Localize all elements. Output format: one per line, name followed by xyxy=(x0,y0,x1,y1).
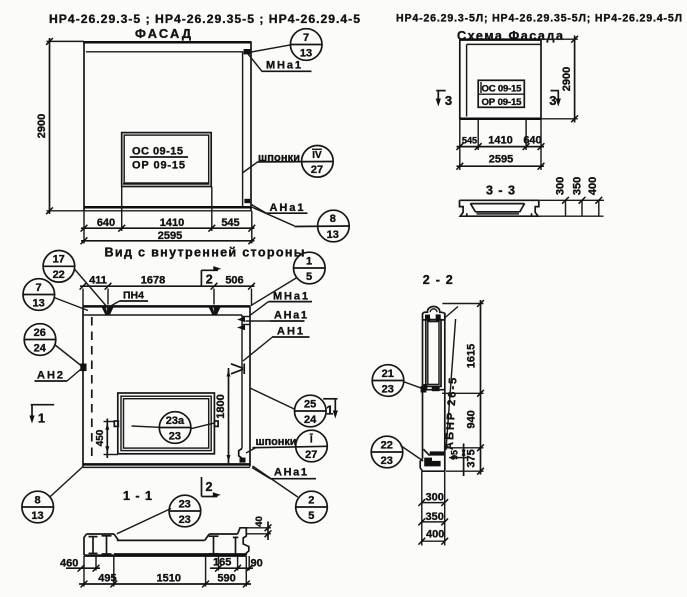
svg-text:АН1: АН1 xyxy=(277,326,303,338)
svg-text:13: 13 xyxy=(31,510,43,522)
svg-text:8: 8 xyxy=(330,213,336,225)
svg-text:3-3: 3-3 xyxy=(486,184,515,198)
svg-text:13: 13 xyxy=(327,229,339,241)
svg-text:2595: 2595 xyxy=(158,230,182,242)
svg-text:350: 350 xyxy=(571,177,583,195)
svg-text:1410: 1410 xyxy=(488,135,512,147)
svg-text:350: 350 xyxy=(426,511,444,523)
svg-text:ФАСАД: ФАСАД xyxy=(135,26,191,41)
svg-text:460: 460 xyxy=(60,558,78,570)
svg-text:IV: IV xyxy=(312,150,322,161)
svg-text:МНа1: МНа1 xyxy=(266,60,301,72)
svg-text:АНа1: АНа1 xyxy=(274,310,307,322)
svg-text:АН2: АН2 xyxy=(37,369,63,381)
svg-text:ОС 09-15: ОС 09-15 xyxy=(482,83,523,94)
svg-text:2: 2 xyxy=(308,494,314,506)
svg-text:1615: 1615 xyxy=(465,344,477,368)
svg-text:506: 506 xyxy=(225,274,243,286)
svg-text:25: 25 xyxy=(304,398,316,410)
svg-text:23а: 23а xyxy=(166,415,185,427)
svg-text:940: 940 xyxy=(465,410,477,428)
svg-text:300: 300 xyxy=(426,492,444,504)
svg-text:22: 22 xyxy=(53,269,65,281)
svg-text:375: 375 xyxy=(465,449,477,467)
svg-text:Схема Фасада: Схема Фасада xyxy=(457,29,564,43)
svg-text:450: 450 xyxy=(95,429,106,446)
svg-text:23: 23 xyxy=(179,514,191,526)
svg-text:27: 27 xyxy=(311,164,323,176)
svg-text:495: 495 xyxy=(98,573,116,585)
svg-text:300: 300 xyxy=(555,177,567,195)
svg-text:23: 23 xyxy=(382,383,394,395)
svg-text:I: I xyxy=(310,435,313,446)
svg-text:Вид с внутренней стороны: Вид с внутренней стороны xyxy=(105,246,305,260)
svg-text:АНа1: АНа1 xyxy=(270,202,304,214)
svg-text:23: 23 xyxy=(381,455,393,467)
svg-text:1: 1 xyxy=(306,255,312,267)
svg-text:545: 545 xyxy=(221,217,239,229)
svg-text:3: 3 xyxy=(549,93,556,108)
svg-text:1678: 1678 xyxy=(141,274,165,286)
svg-text:ПН4: ПН4 xyxy=(123,290,144,302)
svg-text:640: 640 xyxy=(523,135,541,147)
svg-text:23: 23 xyxy=(169,430,181,442)
svg-text:3: 3 xyxy=(445,93,452,108)
svg-text:23: 23 xyxy=(179,498,191,510)
svg-text:МНа1: МНа1 xyxy=(273,290,308,302)
svg-text:1-1: 1-1 xyxy=(123,489,152,503)
svg-text:7: 7 xyxy=(303,32,309,44)
svg-text:2595: 2595 xyxy=(489,154,513,166)
svg-text:НР4-26.29.3-5 ; НР4-26.29.35-5: НР4-26.29.3-5 ; НР4-26.29.35-5 ; НР4-26.… xyxy=(49,12,360,26)
svg-text:7: 7 xyxy=(36,282,42,294)
svg-text:27: 27 xyxy=(305,449,317,461)
svg-text:1510: 1510 xyxy=(157,573,181,585)
svg-text:13: 13 xyxy=(32,297,44,309)
svg-text:165: 165 xyxy=(213,557,231,569)
svg-text:24: 24 xyxy=(34,342,47,354)
svg-text:2900: 2900 xyxy=(561,67,573,91)
svg-text:22: 22 xyxy=(381,439,393,451)
svg-text:ОР 09-15: ОР 09-15 xyxy=(132,160,185,172)
svg-text:5: 5 xyxy=(306,271,312,283)
svg-text:545: 545 xyxy=(462,136,477,146)
svg-text:24: 24 xyxy=(304,414,317,426)
svg-text:2: 2 xyxy=(206,272,213,286)
svg-text:400: 400 xyxy=(587,177,599,195)
svg-text:13: 13 xyxy=(300,47,312,59)
svg-text:640: 640 xyxy=(97,217,115,229)
svg-text:90: 90 xyxy=(251,558,263,570)
svg-text:95: 95 xyxy=(450,450,460,460)
svg-text:ОС 09-15: ОС 09-15 xyxy=(132,146,183,158)
svg-text:8: 8 xyxy=(34,494,40,506)
svg-text:ОР 09-15: ОР 09-15 xyxy=(482,97,523,108)
svg-text:1410: 1410 xyxy=(160,217,184,229)
svg-text:5: 5 xyxy=(308,510,314,522)
svg-text:АНа1: АНа1 xyxy=(274,467,307,479)
svg-text:17: 17 xyxy=(53,254,65,266)
svg-text:2900: 2900 xyxy=(36,114,48,138)
svg-text:1800: 1800 xyxy=(215,394,227,418)
svg-text:26: 26 xyxy=(34,327,46,339)
svg-text:21: 21 xyxy=(382,368,394,380)
svg-text:411: 411 xyxy=(89,274,107,286)
svg-text:40: 40 xyxy=(254,516,265,527)
svg-text:400: 400 xyxy=(426,529,444,541)
svg-text:2-2: 2-2 xyxy=(423,273,453,287)
svg-text:НР4-26.29.3-5Л; НР4-26.29.35-5: НР4-26.29.3-5Л; НР4-26.29.35-5Л; НР4-26.… xyxy=(396,12,682,24)
svg-text:590: 590 xyxy=(217,573,235,585)
svg-text:2: 2 xyxy=(206,480,213,494)
svg-text:1: 1 xyxy=(326,404,333,418)
svg-text:1: 1 xyxy=(38,412,45,426)
